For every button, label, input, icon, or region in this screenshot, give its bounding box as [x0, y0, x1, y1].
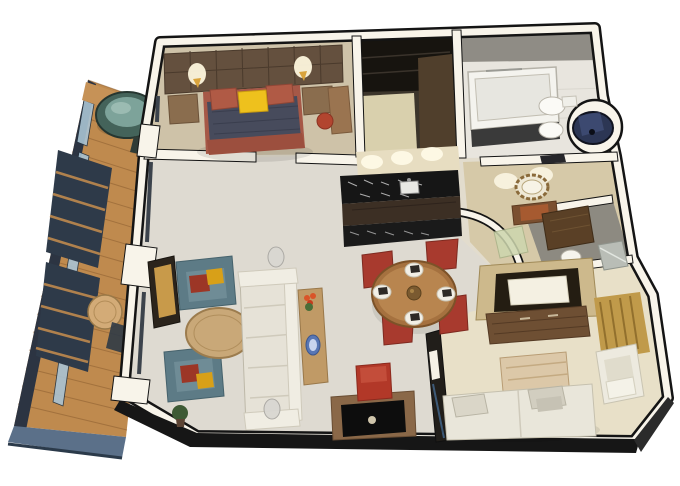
accent-pillow-yellow [196, 372, 214, 389]
bed-pillow-red [266, 84, 294, 105]
mirror-glass [522, 180, 542, 194]
floorplan-svg [0, 0, 680, 486]
vestibule [494, 226, 528, 258]
round-shower-drain [589, 129, 595, 135]
accent-pillow-yellow [206, 268, 224, 285]
toilet-tank [562, 96, 577, 107]
place-setting-napkin [442, 289, 452, 297]
ceiling-light-glow [391, 151, 413, 165]
bed-pillow-red [210, 88, 238, 110]
bathtub-basin [475, 74, 552, 121]
wood-door-panel [542, 206, 594, 250]
kitchen-bar [340, 146, 462, 247]
table-centerpiece [407, 286, 421, 300]
floorplan-image [0, 0, 680, 486]
window-pilaster [111, 376, 150, 404]
toilet [539, 97, 565, 115]
flower-leaves [305, 303, 313, 311]
tv-nook-screen [508, 276, 569, 305]
hall-light-glow [494, 173, 518, 189]
floor-lamp [264, 399, 280, 419]
ceiling-light-glow [361, 155, 383, 169]
place-setting-napkin [410, 313, 420, 321]
nightstand [168, 94, 199, 124]
window-pilaster [137, 124, 160, 158]
red-desk-chair-back [360, 366, 387, 383]
bed-pillow-yellow [238, 90, 268, 113]
flower [304, 295, 310, 301]
floor-lamp [268, 247, 284, 267]
closet-side-cabinet [418, 54, 456, 150]
place-setting-napkin [378, 287, 388, 295]
flower [310, 293, 316, 299]
bedroom-desk [328, 86, 352, 134]
plant-pot [176, 419, 185, 427]
bar-sink [400, 181, 419, 194]
glass-door-frame [157, 96, 158, 122]
bar-faucet [407, 178, 411, 182]
bidet [539, 122, 563, 138]
hot-tub-highlight [111, 102, 131, 114]
accent-pillow-red [189, 274, 210, 293]
blue-dish-inner [309, 339, 317, 351]
glass-door [494, 226, 528, 258]
place-setting-napkin [410, 265, 420, 273]
desk-stool [317, 113, 333, 129]
sofa-bed-pillow [452, 394, 488, 417]
potted-plant [172, 405, 188, 421]
ceiling-light-glow [421, 147, 443, 161]
closet-island [362, 93, 417, 152]
centerpiece-detail [410, 289, 414, 293]
screen-glow [368, 416, 376, 424]
